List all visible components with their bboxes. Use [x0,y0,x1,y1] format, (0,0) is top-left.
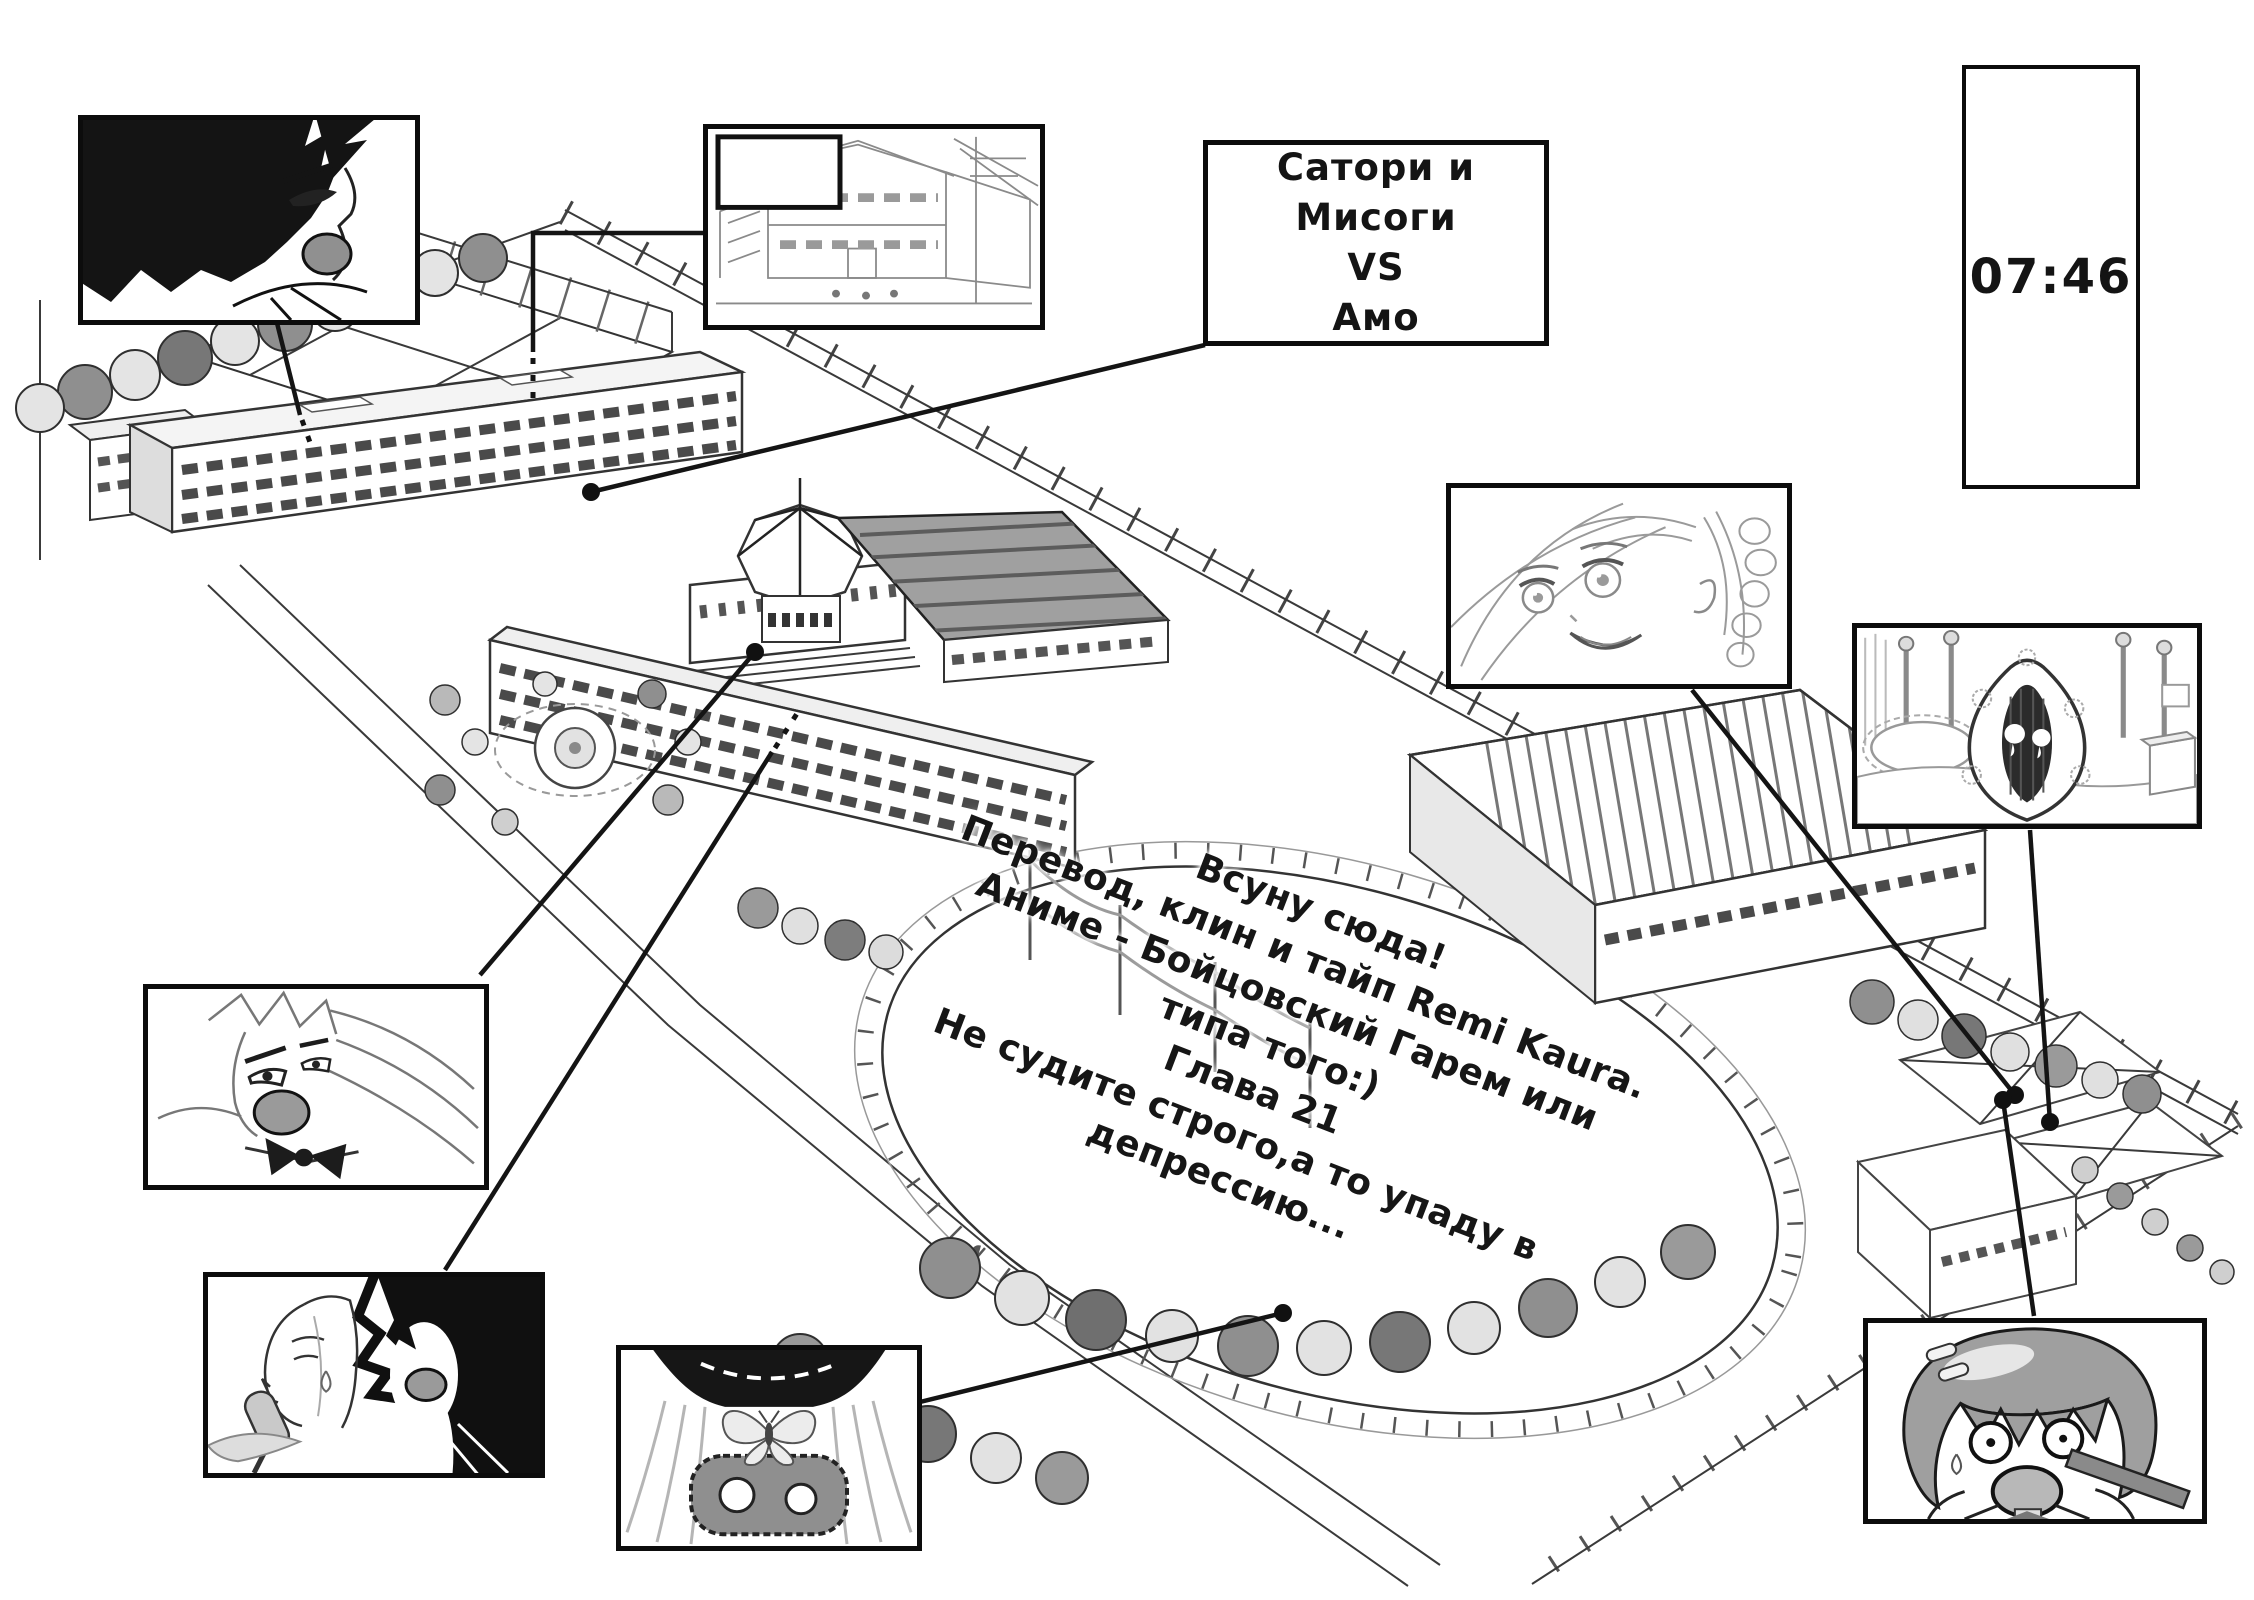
street-building-art [708,129,1040,325]
butterfly-mask-girl-panel [616,1345,922,1551]
battle-caption-line2: VS [1347,243,1404,293]
angry-blonde-girl-panel [143,984,489,1190]
shocked-bob-girl-panel [1863,1318,2207,1524]
boy-shouting-art [83,120,415,320]
street-building-panel [703,124,1045,330]
boy-shouting-panel [78,115,420,325]
battle-caption-line1: Сатори и Мисоги [1208,143,1544,243]
battle-caption-box: Сатори и Мисоги VS Амо [1203,140,1549,346]
clock-time-box: 07:46 [1962,65,2140,489]
map-dot-greenhouse-b [2041,1113,2059,1131]
clock-time: 07:46 [1970,249,2133,305]
map-dot-hall [746,643,764,661]
map-dot-entrance [582,483,600,501]
map-dot-greenhouse-c [1994,1091,2012,1109]
popsicle-pair-art [208,1277,540,1473]
shocked-bob-girl-art [1868,1323,2202,1519]
ghost-under-blanket-art [1857,628,2197,824]
battle-caption-line3: Амо [1332,293,1419,343]
blank-speech-bubble [718,137,840,208]
ghost-under-blanket-panel [1852,623,2202,829]
popsicle-pair-panel [203,1272,545,1478]
manga-page: Всуну сюда! Перевод, клин и тайп Remi Ka… [0,0,2254,1600]
map-dot-trees [1274,1304,1292,1322]
entrance-clock-tower [675,478,920,692]
braided-girl-panel [1446,483,1792,689]
braided-girl-art [1451,488,1787,684]
angry-blonde-girl-art [148,989,484,1185]
butterfly-mask-girl-art [621,1350,917,1546]
